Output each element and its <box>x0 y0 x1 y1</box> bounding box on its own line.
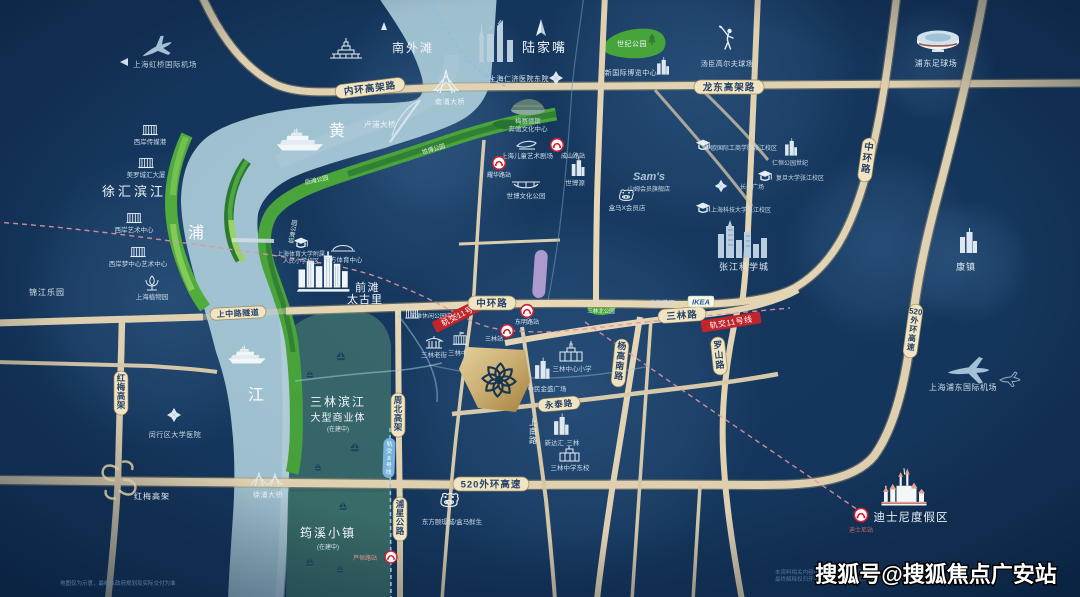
svg-text:上海虹桥国际机场: 上海虹桥国际机场 <box>133 59 197 69</box>
svg-text:地图仅为示意，最终以政府规划及实际交付为准: 地图仅为示意，最终以政府规划及实际交付为准 <box>60 579 176 587</box>
svg-text:世博文化公园: 世博文化公园 <box>507 191 546 200</box>
svg-text:陆家嘴: 陆家嘴 <box>522 40 567 55</box>
svg-text:南浦大桥: 南浦大桥 <box>435 97 465 106</box>
svg-text:太古里: 太古里 <box>347 293 383 306</box>
svg-text:东明路站: 东明路站 <box>515 318 539 326</box>
svg-text:上海仁济医院东院: 上海仁济医院东院 <box>489 74 549 83</box>
svg-text:周北高架: 周北高架 <box>393 395 403 432</box>
svg-text:红梅高架: 红梅高架 <box>116 373 126 410</box>
svg-text:520外环高速: 520外环高速 <box>461 479 522 491</box>
svg-text:新达汇·三林: 新达汇·三林 <box>545 438 580 447</box>
svg-text:IKEA: IKEA <box>692 298 710 307</box>
svg-text:康镇: 康镇 <box>956 261 976 272</box>
svg-text:三林老街: 三林老街 <box>421 350 448 359</box>
svg-text:成山路站: 成山路站 <box>561 152 585 160</box>
svg-text:山姆会员旗舰店: 山姆会员旗舰店 <box>628 185 670 193</box>
svg-text:西岸传媒港: 西岸传媒港 <box>134 137 167 146</box>
svg-text:新国际博览中心: 新国际博览中心 <box>605 68 658 77</box>
svg-text:人民小学校区: 人民小学校区 <box>283 257 319 265</box>
svg-text:筠溪小镇: 筠溪小镇 <box>300 526 356 540</box>
svg-text:黄: 黄 <box>329 122 345 140</box>
svg-text:迪士尼度假区: 迪士尼度假区 <box>874 510 949 524</box>
svg-text:南外滩: 南外滩 <box>392 40 434 55</box>
svg-text:上海体育大学附属: 上海体育大学附属 <box>277 250 325 258</box>
svg-text:中民金盛广场: 中民金盛广场 <box>528 384 568 393</box>
svg-text:迪士尼站: 迪士尼站 <box>849 526 873 534</box>
svg-text:红梅高架: 红梅高架 <box>134 491 170 501</box>
svg-text:锦江乐园: 锦江乐园 <box>29 287 65 297</box>
svg-text:中环路: 中环路 <box>476 298 508 310</box>
svg-text:世博源: 世博源 <box>565 178 585 187</box>
svg-text:世纪公园: 世纪公园 <box>617 39 647 48</box>
svg-text:三林北公园: 三林北公园 <box>587 307 615 315</box>
svg-text:搜狐号@搜狐焦点广安站: 搜狐号@搜狐焦点广安站 <box>815 562 1056 587</box>
svg-text:中欧国际工商学院张江校区: 中欧国际工商学院张江校区 <box>705 144 777 152</box>
svg-text:三林中心小学: 三林中心小学 <box>553 364 593 373</box>
svg-text:前滩: 前滩 <box>355 280 380 294</box>
svg-text:奔驰文化中心: 奔驰文化中心 <box>509 124 549 133</box>
svg-text:宜家荟聚: 宜家荟聚 <box>649 298 676 307</box>
svg-text:浦: 浦 <box>188 224 204 242</box>
svg-text:西岸梦中心艺术中心: 西岸梦中心艺术中心 <box>109 259 168 268</box>
svg-text:闵行区大学医院: 闵行区大学医院 <box>149 430 202 439</box>
svg-text:耀华路站: 耀华路站 <box>487 171 511 179</box>
svg-text:仁恒公园世纪: 仁恒公园世纪 <box>772 159 808 167</box>
svg-text:三林滨江: 三林滨江 <box>310 394 366 409</box>
svg-text:(在建中): (在建中) <box>327 425 349 433</box>
svg-text:上海植物园: 上海植物园 <box>136 292 169 301</box>
svg-text:江: 江 <box>248 386 264 404</box>
svg-text:梅赛德斯: 梅赛德斯 <box>515 116 542 125</box>
svg-text:美罗城汇大厦: 美罗城汇大厦 <box>127 170 167 179</box>
svg-text:浦东足球场: 浦东足球场 <box>915 58 958 68</box>
svg-text:上南路: 上南路 <box>529 418 537 445</box>
svg-text:上海儿童艺术剧场: 上海儿童艺术剧场 <box>501 151 554 160</box>
svg-text:三林站: 三林站 <box>485 335 503 343</box>
svg-text:芦恒路站: 芦恒路站 <box>353 554 377 562</box>
svg-text:卢浦大桥: 卢浦大桥 <box>364 119 396 129</box>
svg-text:(在建中): (在建中) <box>317 543 339 551</box>
svg-text:徐浦大桥: 徐浦大桥 <box>253 490 283 499</box>
svg-text:长泰广场: 长泰广场 <box>740 183 764 191</box>
svg-text:前滩休闲公园中心: 前滩休闲公园中心 <box>410 312 458 320</box>
svg-text:大型商业体: 大型商业体 <box>311 411 366 424</box>
svg-text:上海科技大学张江校区: 上海科技大学张江校区 <box>711 206 771 214</box>
svg-text:西岸艺术中心: 西岸艺术中心 <box>115 225 155 234</box>
svg-text:东方体育中心: 东方体育中心 <box>324 255 364 264</box>
svg-text:上海浦东国际机场: 上海浦东国际机场 <box>929 382 997 392</box>
svg-text:复旦大学张江校区: 复旦大学张江校区 <box>776 174 824 182</box>
svg-text:三林路: 三林路 <box>666 308 698 322</box>
svg-text:汤臣高尔夫球场: 汤臣高尔夫球场 <box>701 59 754 68</box>
svg-text:盒马X会员店: 盒马X会员店 <box>609 203 646 212</box>
svg-text:浦星公路: 浦星公路 <box>396 499 405 536</box>
svg-text:Sam's: Sam's <box>633 171 665 183</box>
svg-text:三林中学东校: 三林中学东校 <box>551 463 591 472</box>
svg-text:龙东高架路: 龙东高架路 <box>702 82 756 94</box>
svg-text:东方颐璟城/盒马鲜生: 东方颐璟城/盒马鲜生 <box>422 517 483 526</box>
svg-text:张江科学城: 张江科学城 <box>719 261 769 272</box>
svg-text:徐汇滨江: 徐汇滨江 <box>102 184 166 199</box>
